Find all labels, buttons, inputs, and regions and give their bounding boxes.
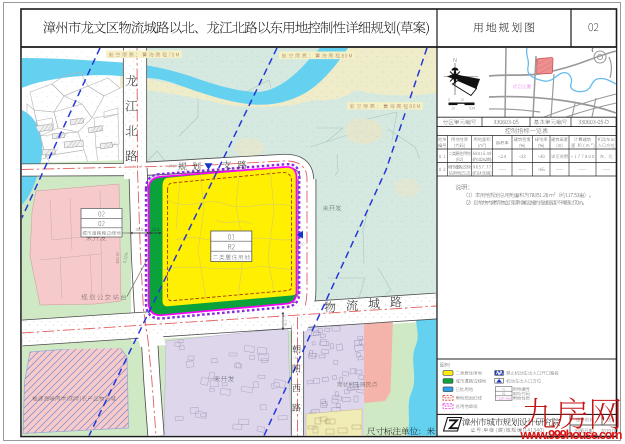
svg-text:www.999house.com: www.999house.com bbox=[520, 428, 623, 442]
